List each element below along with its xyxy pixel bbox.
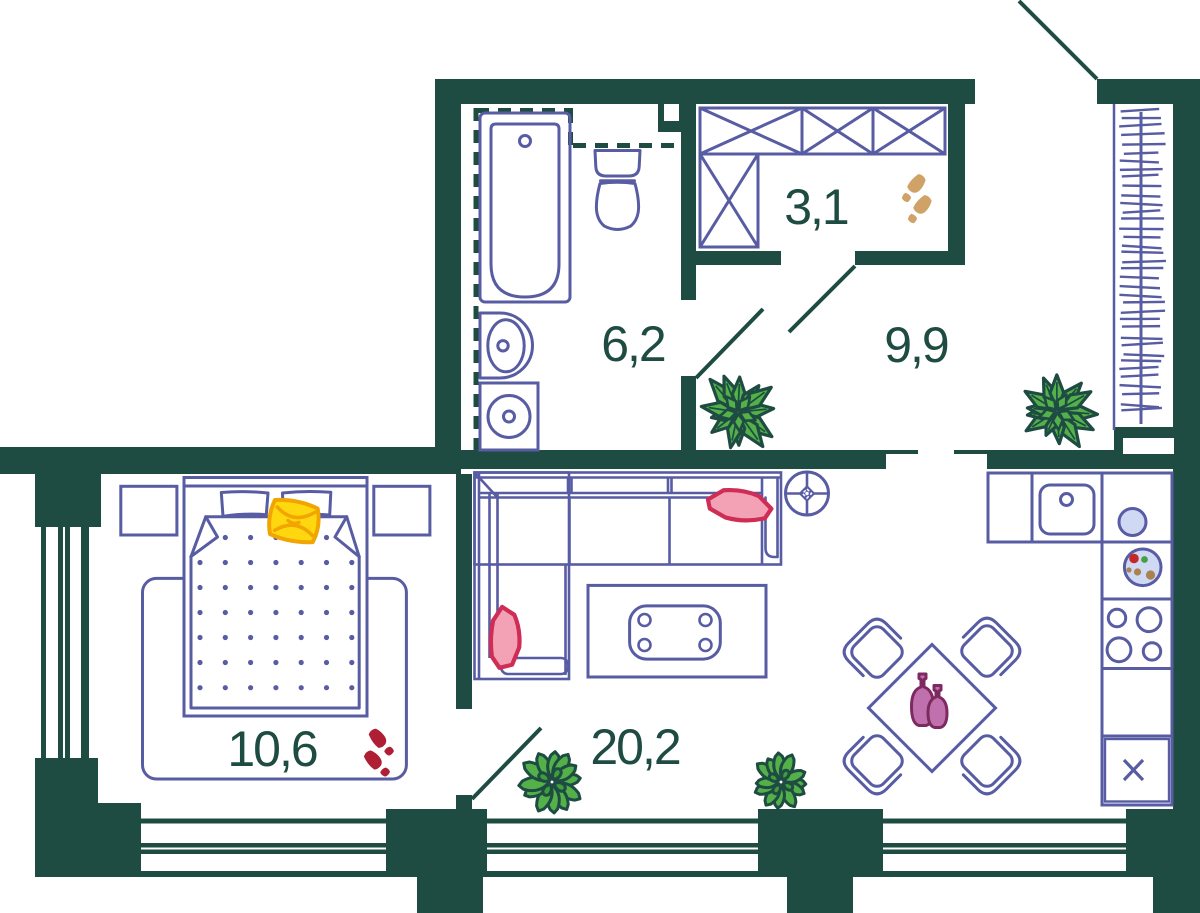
svg-text:3,1: 3,1 [784, 179, 848, 235]
svg-text:10,6: 10,6 [227, 721, 317, 777]
svg-text:9,9: 9,9 [884, 317, 948, 373]
svg-text:6,2: 6,2 [601, 316, 665, 372]
svg-text:20,2: 20,2 [590, 719, 680, 775]
